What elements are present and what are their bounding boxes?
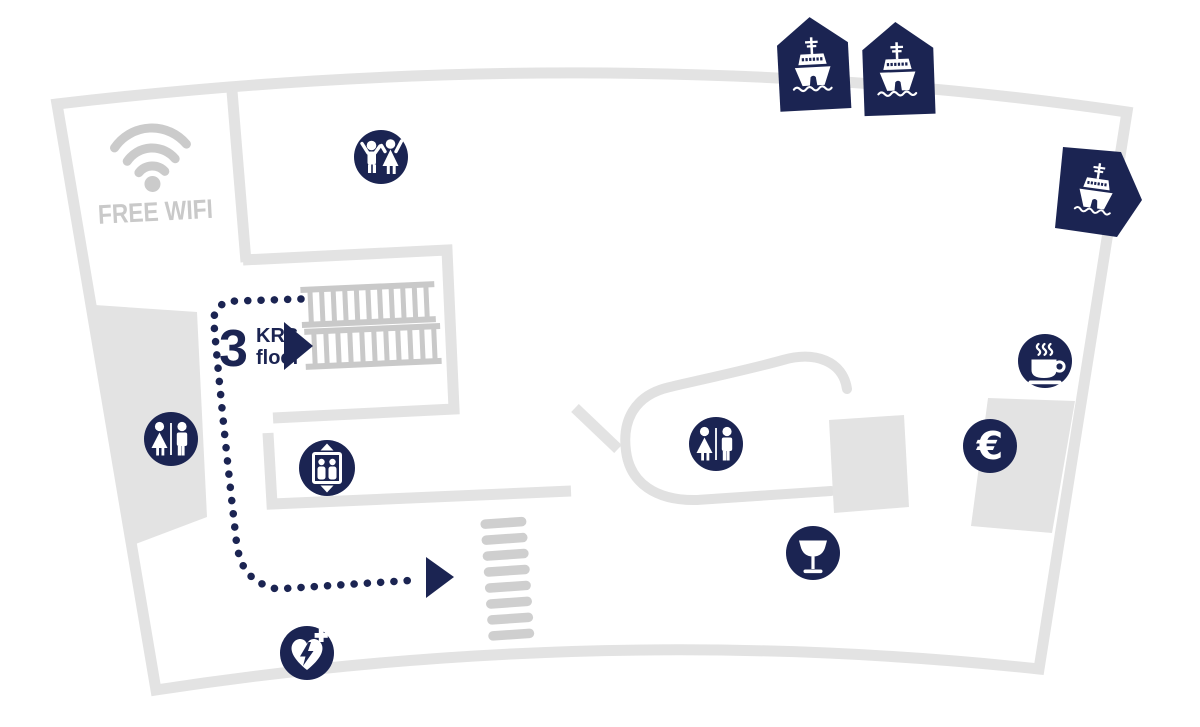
floor-label: 3 KRS. floor [219, 320, 313, 378]
wifi-icon [114, 126, 189, 194]
defibrillator-icon [280, 626, 334, 680]
route-arrow [426, 557, 454, 598]
bar-icon [786, 526, 840, 580]
wifi-zone: FREE WIFI [94, 125, 214, 230]
elevator-icon [299, 440, 355, 496]
restroom-icon-center [689, 417, 743, 471]
ship-marker-2 [861, 21, 935, 116]
steps [480, 517, 534, 641]
euro-symbol: € [976, 424, 1003, 468]
floor-plan-map: FREE WIFI 3 KRS. floor [0, 0, 1200, 727]
coffee-icon [1018, 334, 1072, 388]
short-diagonal-wall [575, 408, 618, 449]
ship-marker-1 [776, 15, 852, 112]
ship-marker-3 [1055, 147, 1142, 237]
currency-exchange-icon: € [963, 419, 1017, 473]
stairs [300, 281, 441, 370]
wifi-room-wall [232, 91, 246, 262]
floor-plan-page: FREE WIFI 3 KRS. floor [0, 0, 1200, 727]
restroom-icon-left [144, 412, 198, 466]
kids-playroom-icon [354, 130, 408, 184]
room-block-1 [829, 415, 909, 513]
floor-number: 3 [219, 320, 248, 378]
wifi-label: FREE WIFI [97, 194, 213, 230]
